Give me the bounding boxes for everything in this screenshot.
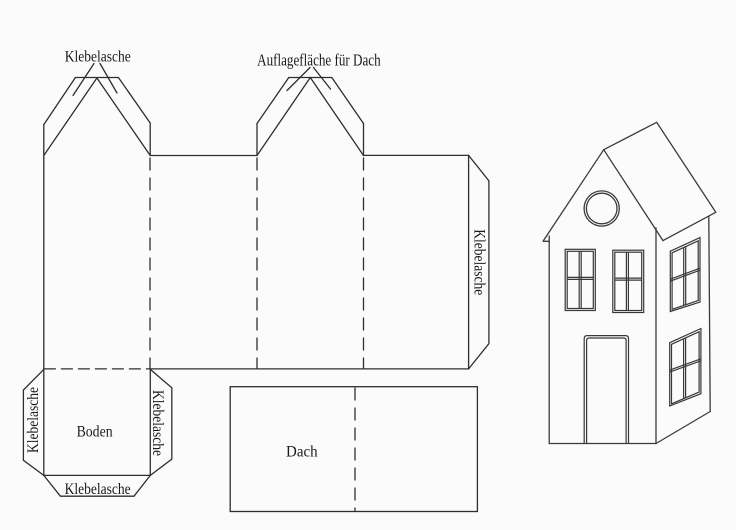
svg-text:Klebelasche: Klebelasche bbox=[471, 229, 488, 295]
svg-text:Klebelasche: Klebelasche bbox=[149, 390, 166, 456]
svg-text:Klebelasche: Klebelasche bbox=[65, 48, 131, 65]
svg-text:Klebelasche: Klebelasche bbox=[25, 387, 42, 453]
svg-text:Klebelasche: Klebelasche bbox=[65, 481, 131, 498]
svg-text:Boden: Boden bbox=[77, 424, 113, 441]
svg-text:Auflagefläche für Dach: Auflagefläche für Dach bbox=[257, 51, 381, 70]
svg-text:Dach: Dach bbox=[286, 444, 318, 461]
